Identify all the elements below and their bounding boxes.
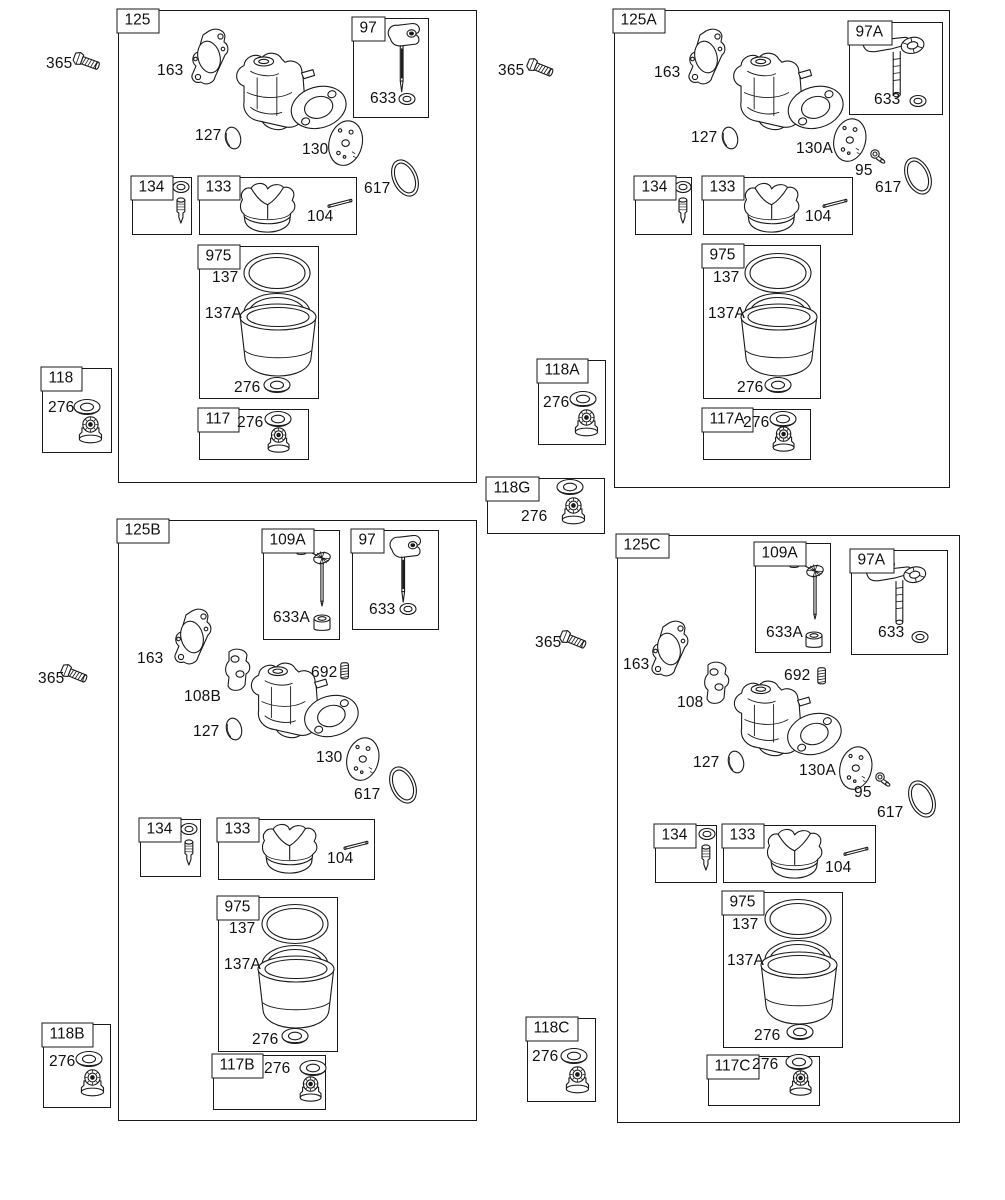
box-label-134: 134 — [634, 176, 677, 201]
box-label-125B: 125B — [117, 519, 170, 544]
part-label-130A: 130A — [796, 140, 833, 157]
part-label-633A: 633A — [766, 624, 803, 641]
part-label-137A: 137A — [205, 305, 242, 322]
part-label-104: 104 — [805, 208, 831, 225]
part-label-365: 365 — [38, 670, 64, 687]
part-label-276: 276 — [743, 414, 769, 431]
box-label-109A: 109A — [754, 542, 807, 567]
part-label-617: 617 — [354, 786, 380, 803]
part-label-137A: 137A — [224, 956, 261, 973]
part-label-276: 276 — [737, 379, 763, 396]
box-label-118C: 118C — [526, 1017, 579, 1042]
box-label-118A: 118A — [537, 359, 589, 384]
box-label-109A: 109A — [262, 529, 315, 554]
box-label-97A: 97A — [848, 21, 893, 46]
part-label-276: 276 — [532, 1048, 558, 1065]
box-label-97A: 97A — [850, 549, 895, 574]
part-label-633: 633 — [370, 90, 396, 107]
part-label-137A: 137A — [727, 952, 764, 969]
box-label-118G: 118G — [486, 477, 540, 502]
part-label-633: 633 — [369, 601, 395, 618]
part-label-163: 163 — [137, 650, 163, 667]
box-label-118B: 118B — [42, 1023, 94, 1048]
part-label-127: 127 — [693, 754, 719, 771]
box-label-134: 134 — [654, 824, 697, 849]
box-label-975: 975 — [217, 896, 260, 921]
part-label-276: 276 — [754, 1027, 780, 1044]
part-label-137: 137 — [713, 269, 739, 286]
part-label-276: 276 — [237, 414, 263, 431]
part-label-137: 137 — [212, 269, 238, 286]
part-label-276: 276 — [543, 394, 569, 411]
part-label-276: 276 — [264, 1060, 290, 1077]
box-label-125: 125 — [117, 9, 160, 34]
box-label-133: 133 — [198, 176, 241, 201]
box-label-133: 133 — [722, 824, 765, 849]
box-label-97: 97 — [351, 529, 385, 554]
part-label-276: 276 — [48, 399, 74, 416]
box-label-975: 975 — [702, 244, 745, 269]
part-label-104: 104 — [327, 850, 353, 867]
part-label-104: 104 — [307, 208, 333, 225]
part-label-163: 163 — [654, 64, 680, 81]
part-label-633: 633 — [878, 624, 904, 641]
box-label-97: 97 — [352, 17, 386, 42]
part-label-692: 692 — [784, 667, 810, 684]
part-label-127: 127 — [691, 129, 717, 146]
parts-diagram: 125 97 134 133 975 117 118 125A 97A 134 … — [0, 0, 1005, 1200]
part-label-95: 95 — [855, 162, 873, 179]
part-label-365: 365 — [498, 62, 524, 79]
part-label-163: 163 — [623, 656, 649, 673]
part-label-127: 127 — [195, 127, 221, 144]
box-label-134: 134 — [139, 818, 182, 843]
part-label-633: 633 — [874, 91, 900, 108]
mounting-bolt-icon — [526, 57, 555, 79]
part-label-276: 276 — [49, 1053, 75, 1070]
part-label-137A: 137A — [708, 305, 745, 322]
part-label-163: 163 — [157, 62, 183, 79]
part-label-137: 137 — [229, 920, 255, 937]
part-label-276: 276 — [752, 1056, 778, 1073]
box-label-117: 117 — [198, 408, 240, 433]
part-label-633A: 633A — [273, 609, 310, 626]
part-label-276: 276 — [521, 508, 547, 525]
part-label-127: 127 — [193, 723, 219, 740]
part-label-276: 276 — [234, 379, 260, 396]
part-label-692: 692 — [311, 664, 337, 681]
part-label-276: 276 — [252, 1031, 278, 1048]
part-label-108: 108 — [677, 694, 703, 711]
box-label-133: 133 — [217, 818, 260, 843]
part-label-617: 617 — [364, 180, 390, 197]
mounting-bolt-icon — [559, 629, 588, 651]
part-label-104: 104 — [825, 859, 851, 876]
box-label-134: 134 — [131, 176, 174, 201]
part-label-130A: 130A — [799, 762, 836, 779]
part-label-617: 617 — [875, 179, 901, 196]
box-label-117B: 117B — [212, 1054, 264, 1079]
part-label-130: 130 — [302, 141, 328, 158]
part-label-108B: 108B — [184, 688, 221, 705]
part-label-137: 137 — [732, 916, 758, 933]
box-label-975: 975 — [198, 245, 241, 270]
box-label-125C: 125C — [616, 534, 670, 559]
part-label-130: 130 — [316, 749, 342, 766]
part-label-95: 95 — [854, 784, 872, 801]
part-label-365: 365 — [535, 634, 561, 651]
part-label-365: 365 — [46, 55, 72, 72]
box-label-975: 975 — [722, 891, 765, 916]
part-label-617: 617 — [877, 804, 903, 821]
box-label-125A: 125A — [613, 9, 666, 34]
box-label-118: 118 — [41, 367, 83, 392]
mounting-bolt-icon — [72, 51, 101, 72]
box-label-133: 133 — [702, 176, 745, 201]
